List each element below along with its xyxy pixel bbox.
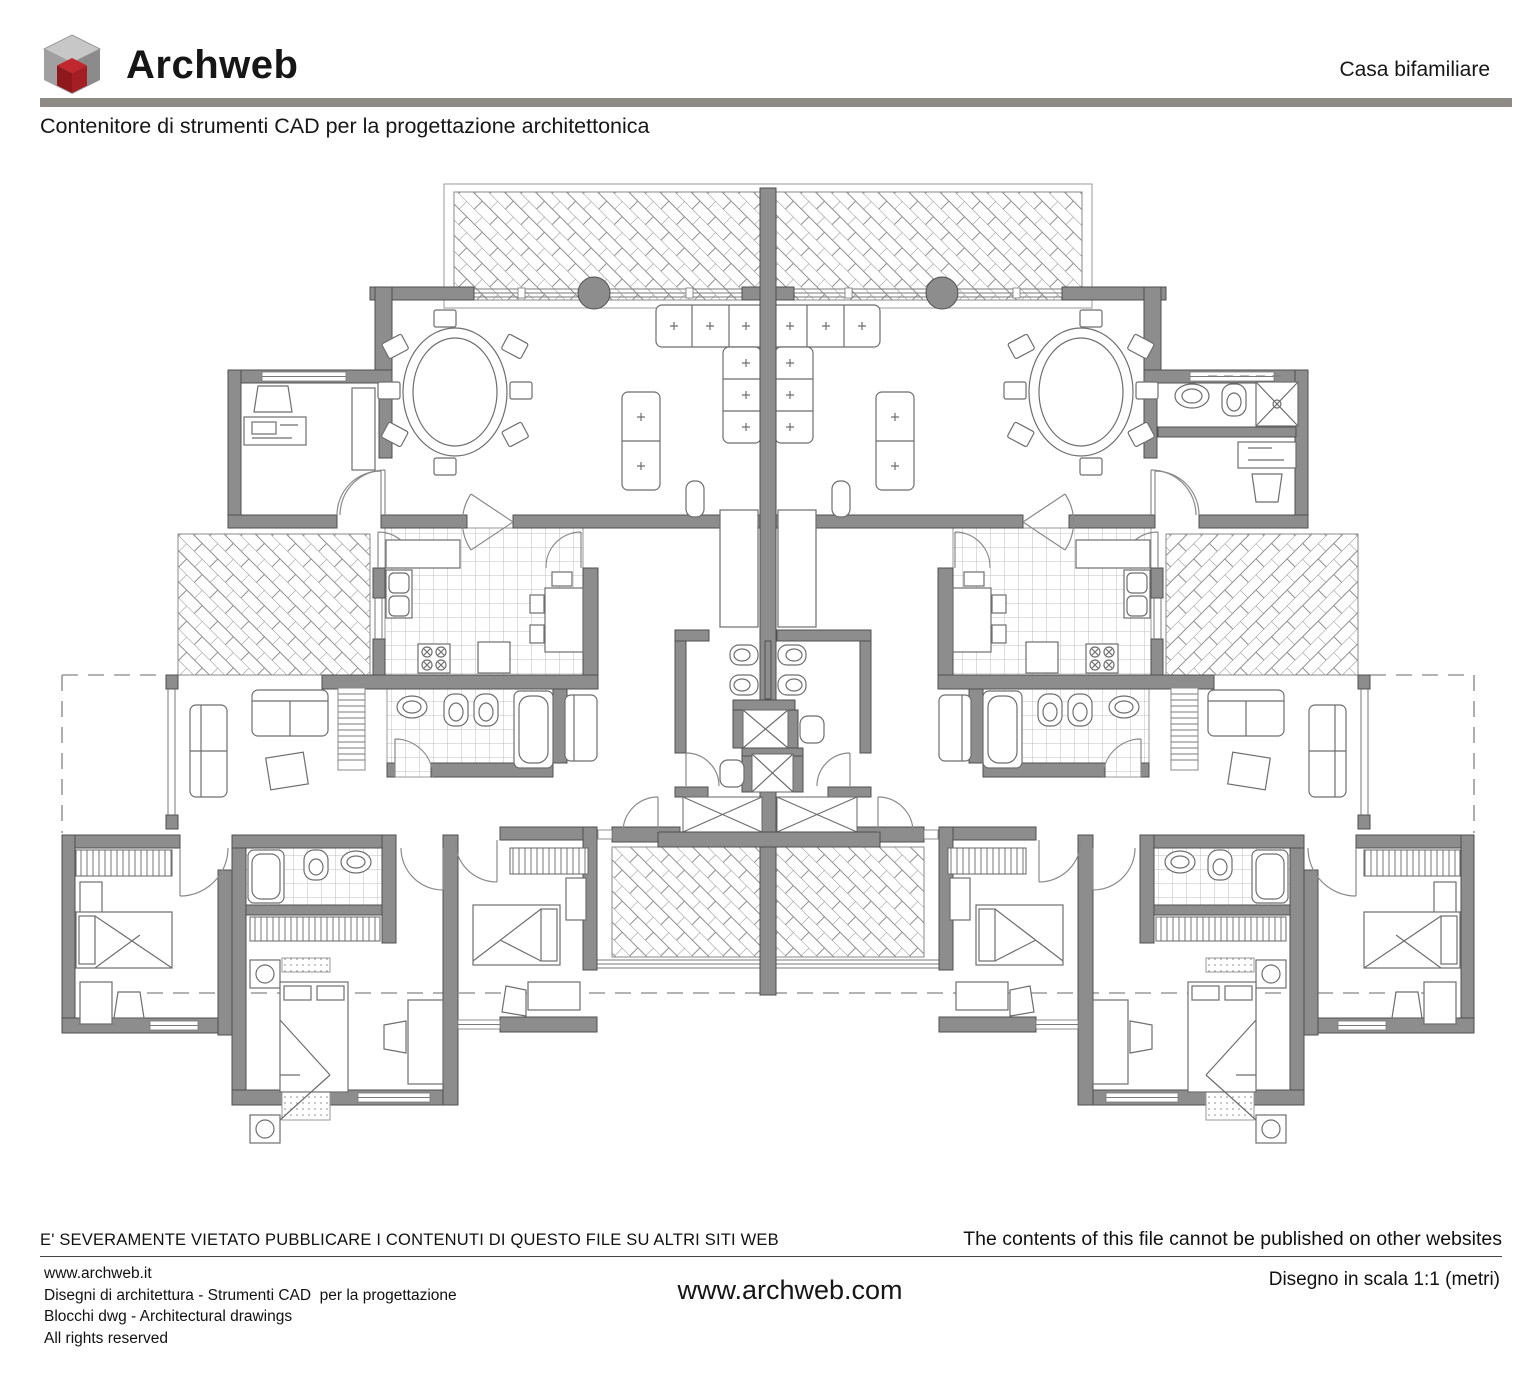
header-tagline: Contenitore di strumenti CAD per la prog… bbox=[40, 114, 650, 139]
central-spine-wall bbox=[760, 188, 776, 995]
footer-line4: All rights reserved bbox=[44, 1330, 168, 1347]
column bbox=[926, 277, 958, 309]
column bbox=[578, 277, 610, 309]
right-unit bbox=[770, 287, 1474, 1143]
floor-plan-drawing bbox=[0, 170, 1536, 1230]
wing-bath-interior bbox=[1158, 376, 1298, 502]
warning-english: The contents of this file cannot be publ… bbox=[963, 1228, 1502, 1251]
footer-line3: Blocchi dwg - Architectural drawings bbox=[44, 1308, 292, 1325]
scale-note: Disegno in scala 1:1 (metri) bbox=[1269, 1269, 1500, 1291]
brand-title: Archweb bbox=[126, 43, 298, 88]
header-divider-bar bbox=[40, 98, 1512, 107]
footer-divider bbox=[40, 1256, 1502, 1257]
office-interior bbox=[244, 386, 375, 470]
warning-italian: E' SEVERAMENTE VIETATO PUBBLICARE I CONT… bbox=[40, 1231, 779, 1250]
project-title: Casa bifamiliare bbox=[1339, 58, 1490, 82]
left-unit bbox=[62, 287, 766, 1143]
page-footer: E' SEVERAMENTE VIETATO PUBBLICARE I CONT… bbox=[0, 1228, 1536, 1263]
archweb-logo-icon bbox=[40, 34, 104, 96]
